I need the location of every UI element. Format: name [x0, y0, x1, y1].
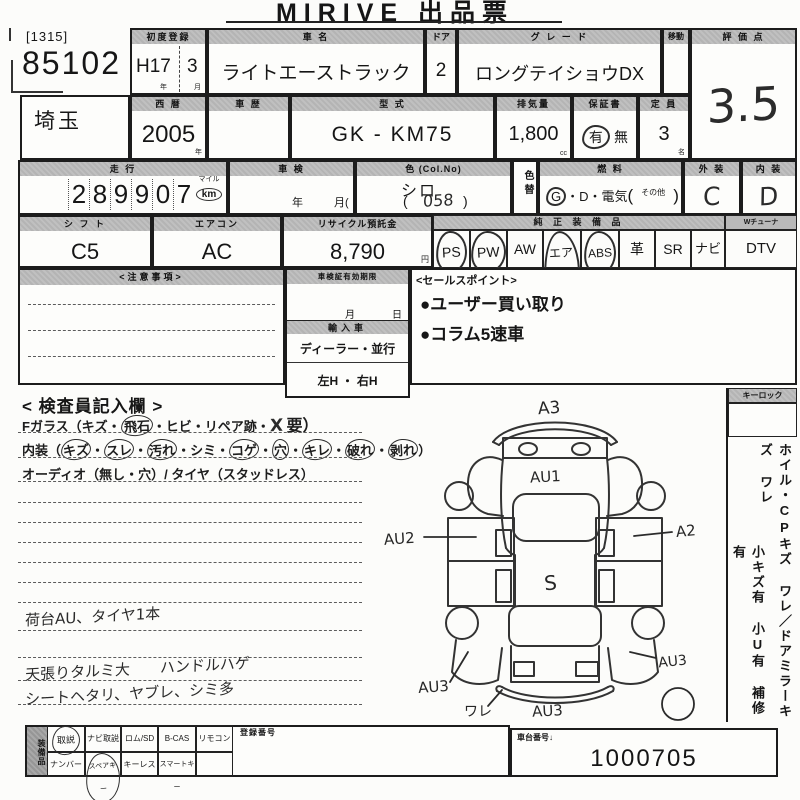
auction-sheet: MIRIVE 出品票 [1315] 85102 初度登録 H17 3 年 月 車… — [0, 0, 800, 800]
mark-au3-left: AU3 — [417, 677, 449, 697]
car-condition-diagram: A3 AU1 AU2 A2 S AU3 AU3 ワレ AU3 — [372, 390, 732, 722]
mark-au3-right: AU3 — [657, 652, 687, 671]
rear-wheel-left — [446, 607, 478, 639]
keylock-header: キーロック — [728, 388, 797, 403]
dealer-divider — [287, 362, 408, 363]
move-label: 移動 — [664, 30, 688, 44]
bottom-cell-number-plate: ナンバー — [47, 752, 85, 777]
capacity-unit: 名 — [678, 147, 685, 157]
mileage-digits: 2 8 9 9 0 7 — [68, 179, 194, 210]
model-year-label: 西 暦 — [132, 97, 205, 111]
sales-point-item: ●コラム5速車 — [420, 320, 524, 345]
recycle-fee-unit: 円 — [421, 254, 429, 265]
mark-ware: ワレ — [464, 704, 492, 720]
color-paren-close: ) — [463, 193, 468, 209]
caution-line — [28, 330, 275, 331]
taillight-left — [514, 662, 534, 676]
door-label: ドア — [427, 30, 455, 44]
bottom-cell-bcas: B-CAS — [158, 725, 196, 752]
validity-label: 車検証有効期限 — [287, 270, 408, 284]
corner-bracket-v — [11, 60, 13, 93]
front-bumper-ends — [493, 442, 617, 445]
color-code: 058 — [423, 190, 454, 211]
bottom-vertical-label: 装備品 — [27, 727, 47, 775]
model-year-value: 2005 — [132, 121, 205, 149]
aircon-cell: エアコン AC — [152, 215, 282, 268]
corner-tick — [9, 28, 11, 41]
bottom-cell-rom-sd: ロム/SD — [121, 725, 158, 752]
prefecture-cell: 埼玉 — [20, 95, 130, 160]
note-line — [18, 630, 362, 631]
caution-box: <注意事項> — [18, 268, 285, 385]
recycle-fee-label: リサイクル預託金 — [284, 217, 431, 231]
mark-au1: AU1 — [529, 467, 561, 487]
sheet-title: MIRIVE 出品票 — [225, 0, 565, 29]
bottom-cell-keyless: キーレス — [121, 752, 158, 777]
bottom-cell-empty — [196, 752, 233, 777]
move-cell: 移動 — [662, 28, 690, 95]
validity-day: 日 — [392, 306, 402, 321]
windshield — [513, 494, 599, 541]
capacity-label: 定 員 — [640, 97, 688, 111]
mark-au2: AU2 — [383, 529, 415, 549]
year-unit: 年 — [160, 82, 167, 92]
history-cell: 車 歴 — [207, 95, 290, 160]
displacement-label: 排気量 — [497, 97, 570, 111]
exterior-grade-value: C — [685, 182, 739, 212]
cab-side-left — [501, 458, 506, 548]
equip-cell-leather: 革 — [619, 230, 655, 268]
taillight-right — [576, 662, 598, 676]
shift-value: C5 — [20, 239, 150, 265]
front-fender-right — [607, 457, 642, 516]
exterior-grade-label: 外 装 — [685, 162, 739, 176]
shaken-year-unit: 年 — [292, 194, 303, 210]
a2-pointer-line — [634, 532, 672, 536]
warranty-cell: 保証書 有 無 — [572, 95, 638, 160]
fuel-gasoline-circled: G — [546, 186, 567, 206]
import-header: 輸入車 — [287, 320, 408, 334]
door-window-right-2 — [599, 570, 614, 602]
front-bumper-outer — [493, 423, 617, 443]
recycle-fee-cell: リサイクル預託金 8,790 円 — [282, 215, 433, 268]
displacement-unit: cc — [560, 150, 567, 157]
chassis-number-label: 車台番号↓ — [517, 732, 553, 743]
model-year-cell: 西 暦 2005 年 — [130, 95, 207, 160]
grade-label: グ レ ー ド — [459, 30, 660, 44]
shaken-month-unit: 月( — [334, 194, 349, 210]
car-name-cell: 車 名 ライトエーストラック — [207, 28, 425, 95]
rear-window — [509, 606, 601, 646]
equip-cell-aw: AW — [507, 230, 543, 268]
color-cell: 色 (Col.No) シロ ( 058 ) — [355, 160, 512, 215]
first-registration-label: 初度登録 — [132, 30, 205, 44]
lot-number: 85102 — [22, 45, 121, 82]
capacity-value: 3 — [640, 123, 688, 146]
bottom-cell-remote: リモコン — [196, 725, 233, 752]
score-cell: 評 価 点 3.5 — [690, 28, 797, 160]
sales-points-box: <セールスポイント> ●ユーザー買い取り ●コラム5速車 — [410, 268, 797, 385]
equip-cell-airbag: エアB — [543, 230, 581, 268]
first-registration-year: H17 — [136, 56, 171, 78]
mark-a3: A3 — [537, 398, 561, 420]
door-cell: ドア 2 — [425, 28, 457, 95]
prefecture-value: 埼玉 — [34, 105, 82, 135]
fuel-cell: 燃 料 G・D・電気(その他) — [538, 160, 683, 215]
recycle-fee-value: 8,790 — [284, 239, 431, 265]
title-underline — [226, 21, 562, 23]
door-value: 2 — [427, 60, 455, 82]
model-code-label: 型 式 — [292, 97, 493, 111]
equip-cell-ps: PS — [433, 230, 470, 268]
lot-ref: [1315] — [26, 29, 68, 44]
note-line — [18, 602, 362, 603]
interior-grade-label: 内 装 — [743, 162, 795, 176]
bottom-cell-navi-manual: ナビ取説 — [85, 725, 121, 752]
mileage-cell: 走 行 2 8 9 9 0 7 マイル km — [18, 160, 228, 215]
color-change-cell: 色替 — [512, 160, 538, 215]
handle-side: 左H ・ 右H — [287, 372, 408, 389]
interior-grade-cell: 内 装 D — [741, 160, 797, 215]
mileage-label: 走 行 — [20, 162, 226, 176]
warranty-label: 保証書 — [574, 97, 636, 111]
headlight-left — [519, 443, 537, 455]
fuel-value: G・D・電気(その他) — [546, 186, 679, 206]
sidebar-note-scratch: 小キズ有 小U有 補修有 — [729, 545, 767, 723]
caution-line — [28, 304, 275, 305]
shaken-label: 車 検 — [230, 162, 353, 176]
exterior-grade-cell: 外 装 C — [683, 160, 741, 215]
bottom-cell-spare-key: スペアキー — [85, 752, 121, 777]
model-year-unit: 年 — [195, 147, 202, 157]
color-paren-open: ( — [403, 193, 408, 209]
grade-value: ロングテイショウDX — [459, 60, 660, 86]
shift-cell: シ フ ト C5 — [18, 215, 152, 268]
corner-bracket-h — [11, 91, 63, 93]
month-unit: 月 — [194, 82, 201, 92]
front-fender-left — [468, 457, 503, 516]
equip-cell-sr: SR — [655, 230, 691, 268]
sidebar-divider — [726, 388, 728, 722]
sales-point-item: ●ユーザー買い取り — [420, 290, 566, 315]
color-label: 色 (Col.No) — [357, 162, 510, 176]
dealer-parallel: ディーラー・並行 — [287, 340, 408, 357]
rear-bumper-ends — [496, 686, 613, 691]
color-change-label: 色替 — [520, 170, 535, 198]
chassis-number-value: 1000705 — [512, 745, 776, 773]
keylock-box — [728, 403, 797, 437]
displacement-value: 1,800 — [497, 123, 570, 146]
note-line — [18, 481, 362, 482]
bottom-cell-smart-key: スマートキー — [158, 752, 196, 777]
validity-box: 車検証有効期限 月 日 輸入車 ディーラー・並行 左H ・ 右H — [285, 268, 410, 398]
rear-fender-left — [452, 640, 502, 684]
note-line — [18, 542, 362, 543]
note-line — [18, 522, 362, 523]
score-label: 評 価 点 — [692, 30, 795, 44]
au3-right-pointer-line — [630, 652, 656, 658]
empty-mark-circle — [662, 688, 694, 720]
equip-cell-dtv: DTV — [725, 230, 797, 268]
warranty-value: 有 無 — [574, 125, 636, 149]
equip-cell-abs: ABS — [581, 230, 619, 268]
equip-cell-navi: ナビ — [691, 230, 725, 268]
equipment-header: 純 正 装 備 品 — [433, 215, 725, 230]
warranty-no: 無 — [614, 129, 628, 145]
shaken-cell: 車 検 年 月( — [228, 160, 355, 215]
cab-side-right — [604, 458, 609, 548]
note-line — [18, 582, 362, 583]
history-label: 車 歴 — [209, 97, 288, 111]
model-code-cell: 型 式 GK - KM75 — [290, 95, 495, 160]
grade-cell: グ レ ー ド ロングテイショウDX — [457, 28, 662, 95]
mileage-unit-badge: マイル km — [192, 176, 226, 202]
dtv-header: Wチューナ — [725, 215, 797, 230]
bottom-cell-manual: 取説 — [47, 725, 85, 752]
rear-bumper-inner — [502, 687, 608, 698]
note-line — [18, 457, 362, 458]
capacity-cell: 定 員 3 名 — [638, 95, 690, 160]
note-line — [18, 432, 362, 433]
first-registration-cell: 初度登録 H17 3 年 月 — [130, 28, 207, 95]
note-line — [18, 502, 362, 503]
car-name-value: ライトエーストラック — [209, 58, 423, 85]
interior-grade-value: D — [743, 182, 795, 212]
caution-line — [28, 356, 275, 357]
first-registration-divider — [179, 46, 180, 92]
score-value: 3.5 — [692, 78, 795, 132]
mark-au3-bottom: AU3 — [532, 701, 564, 721]
warranty-yes-circled: 有 — [581, 124, 610, 149]
door-window-left-2 — [496, 570, 511, 602]
aircon-label: エアコン — [154, 217, 280, 231]
headlight-right — [572, 443, 590, 455]
displacement-cell: 排気量 1,800 cc — [495, 95, 572, 160]
inspector-note: 荷台AU、タイヤ1本 — [25, 602, 161, 630]
mark-s: S — [543, 570, 558, 595]
shift-label: シ フ ト — [20, 217, 150, 231]
aircon-value: AC — [154, 239, 280, 265]
chassis-number-box: 車台番号↓ 1000705 — [510, 728, 778, 777]
rear-wheel-right — [632, 607, 664, 639]
registration-number-label: 登録番号 — [240, 727, 276, 738]
mark-a2: A2 — [675, 521, 696, 541]
fuel-label: 燃 料 — [540, 162, 681, 176]
sales-points-label: <セールスポイント> — [416, 272, 517, 288]
equip-cell-pw: PW — [470, 230, 507, 268]
note-line — [18, 562, 362, 563]
model-code-value: GK - KM75 — [292, 123, 493, 147]
rear-fender-right — [608, 640, 658, 684]
caution-label: <注意事項> — [20, 270, 283, 285]
validity-month: 月 — [345, 306, 355, 321]
first-registration-month: 3 — [187, 56, 198, 78]
car-name-label: 車 名 — [209, 30, 423, 44]
